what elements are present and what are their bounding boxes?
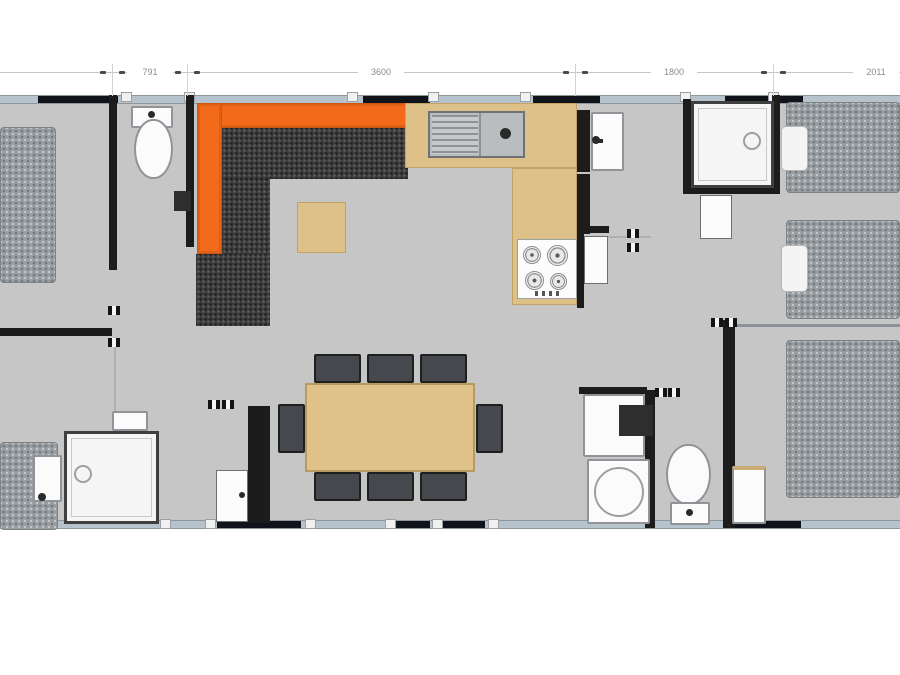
tv-unit bbox=[174, 191, 191, 211]
dining-chair bbox=[420, 354, 467, 383]
dining-chair bbox=[314, 472, 361, 501]
dimension-label-1800: 1800 bbox=[651, 66, 697, 78]
dimension-label-2011: 2011 bbox=[853, 66, 899, 78]
shower-door-panel bbox=[700, 195, 732, 239]
entrance-door-handle bbox=[239, 492, 245, 498]
floor-plan: 791360018002011 bbox=[0, 0, 900, 675]
wall-entrance-column bbox=[248, 406, 270, 523]
sofa-cushions-top bbox=[222, 128, 408, 179]
sofa-back-left bbox=[197, 103, 222, 254]
dining-chair bbox=[476, 404, 503, 453]
dimension-label-3600: 3600 bbox=[358, 66, 404, 78]
wall-left-bedroom-horizontal bbox=[0, 328, 112, 336]
dimension-extension bbox=[112, 64, 113, 96]
dimension-arrow bbox=[563, 71, 569, 74]
toilet-tank-button bbox=[148, 111, 155, 118]
window-bottom-2 bbox=[393, 521, 430, 528]
door-hinge bbox=[108, 338, 120, 347]
window-top-3 bbox=[533, 96, 600, 103]
wall-shower-left bbox=[683, 99, 691, 194]
cooktop-knobs bbox=[535, 291, 563, 296]
wall-wc-right bbox=[186, 95, 194, 247]
wall-left-bedroom-vertical bbox=[109, 95, 117, 270]
frame-bracket bbox=[428, 92, 439, 102]
wall-hall-stub bbox=[577, 226, 609, 233]
frame-bracket bbox=[520, 92, 531, 102]
frame-bracket bbox=[347, 92, 358, 102]
dimension-arrow bbox=[175, 71, 181, 74]
toilet-bowl-bathroom bbox=[666, 444, 711, 505]
pillow-middle-bed bbox=[781, 245, 808, 292]
dining-chair bbox=[420, 472, 467, 501]
dimension-label-791: 791 bbox=[127, 66, 173, 78]
toilet-base-button bbox=[686, 509, 693, 516]
wall-kitchen-hall-thin bbox=[577, 234, 584, 308]
wall-kitchen-hall-upper bbox=[577, 110, 590, 172]
burner bbox=[550, 273, 567, 290]
bed-right-bottom bbox=[786, 340, 900, 498]
nightstand bbox=[732, 466, 766, 524]
sink-drain bbox=[500, 128, 511, 139]
sofa-chaise bbox=[196, 254, 270, 326]
sofa-cushions-left bbox=[222, 179, 270, 256]
frame-bracket bbox=[432, 519, 443, 529]
dimension-extension bbox=[575, 64, 576, 96]
window-top-1 bbox=[38, 96, 118, 103]
frame-bracket bbox=[488, 519, 499, 529]
door-hinge bbox=[627, 229, 639, 238]
hall-door-panel bbox=[584, 236, 608, 284]
frame-bracket bbox=[205, 519, 216, 529]
dimension-arrow bbox=[119, 71, 125, 74]
wall-kitchen-hall-lower bbox=[577, 174, 590, 234]
sofa-back-top bbox=[197, 103, 408, 128]
dimension-arrow bbox=[194, 71, 200, 74]
dimension-arrow bbox=[780, 71, 786, 74]
door-hinge bbox=[711, 318, 723, 327]
frame-bracket bbox=[121, 92, 132, 102]
burner bbox=[525, 271, 544, 290]
frame-bracket bbox=[385, 519, 396, 529]
dining-chair bbox=[367, 354, 414, 383]
door-hinge bbox=[222, 400, 234, 409]
hall-washbasin-tap bbox=[592, 136, 600, 144]
sink-drainboard bbox=[432, 115, 478, 154]
door-hinge bbox=[668, 388, 680, 397]
door-hinge bbox=[208, 400, 220, 409]
shower-step bbox=[112, 411, 148, 431]
frame-bracket bbox=[160, 519, 171, 529]
door-hinge bbox=[725, 318, 737, 327]
washbasin-bottom-left-tap bbox=[38, 493, 46, 501]
sink-divider bbox=[479, 113, 481, 156]
dining-chair bbox=[278, 404, 305, 453]
dining-table bbox=[305, 383, 475, 472]
toilet-bowl-top-wc bbox=[134, 119, 173, 179]
dimension-arrow bbox=[582, 71, 588, 74]
wall-bathroom-horizontal bbox=[579, 387, 647, 394]
door-hinge bbox=[655, 388, 667, 397]
coffee-table bbox=[297, 202, 346, 253]
door-hinge bbox=[108, 306, 120, 315]
wall-right-bedrooms-divider bbox=[735, 324, 900, 327]
window-bottom-3 bbox=[440, 521, 485, 528]
shower-drain-bottom-left bbox=[74, 465, 92, 483]
window-top-2 bbox=[363, 96, 430, 103]
bathroom-round-sink bbox=[594, 467, 644, 517]
dimension-arrow bbox=[761, 71, 767, 74]
dining-chair bbox=[314, 354, 361, 383]
pillow-top-bed bbox=[781, 126, 808, 171]
shower-drain-top-right bbox=[743, 132, 761, 150]
bathroom-stool bbox=[619, 405, 653, 436]
dimension-arrow bbox=[100, 71, 106, 74]
burner bbox=[547, 245, 568, 266]
dimension-extension bbox=[773, 64, 774, 96]
burner bbox=[523, 246, 541, 264]
door-hinge bbox=[627, 243, 639, 252]
dimension-extension bbox=[187, 64, 188, 96]
dining-chair bbox=[367, 472, 414, 501]
frame-bracket bbox=[305, 519, 316, 529]
bed-left-bedroom bbox=[0, 127, 56, 283]
